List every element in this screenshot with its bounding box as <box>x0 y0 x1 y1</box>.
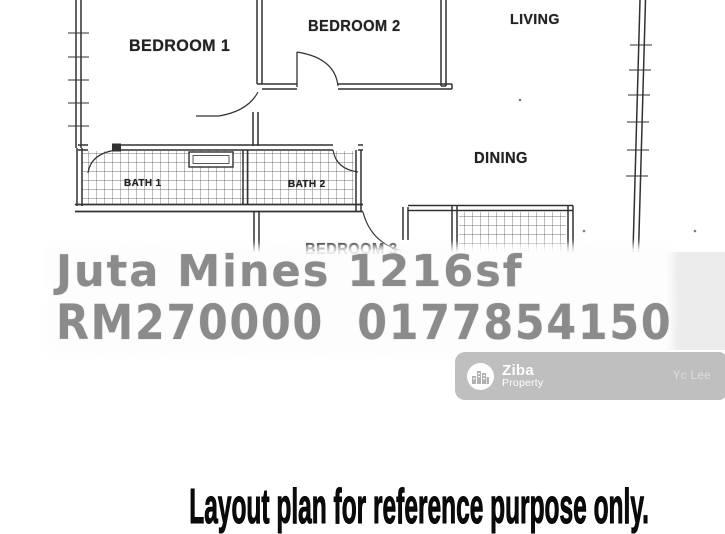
buildings-icon <box>472 369 489 384</box>
room-label-bath-2: BATH 2 <box>288 178 326 190</box>
scan-tint-strip <box>666 252 725 350</box>
agency-brand-name: Ziba <box>502 363 543 379</box>
room-label-bath-1: BATH 1 <box>124 177 162 189</box>
listing-image: { "floor_plan": { "rooms": [ {"label": "… <box>0 0 725 523</box>
watermark-price-phone: RM270000 0177854150 <box>56 299 672 347</box>
room-label-bedroom-1: BEDROOM 1 <box>129 36 230 56</box>
watermark-title: Juta Mines 1216sf <box>56 250 524 294</box>
disclaimer-text: Layout plan for reference purpose only. <box>189 483 552 532</box>
agency-logo <box>467 363 494 390</box>
room-label-bedroom-2: BEDROOM 2 <box>308 18 401 36</box>
agent-name: Yc Lee <box>673 370 711 382</box>
agency-brand-sub: Property <box>502 378 543 389</box>
agency-name-block: Ziba Property <box>502 363 543 390</box>
room-label-living: LIVING <box>510 11 560 28</box>
room-label-dining: DINING <box>474 150 528 168</box>
agency-badge: Ziba Property Yc Lee <box>455 352 725 400</box>
